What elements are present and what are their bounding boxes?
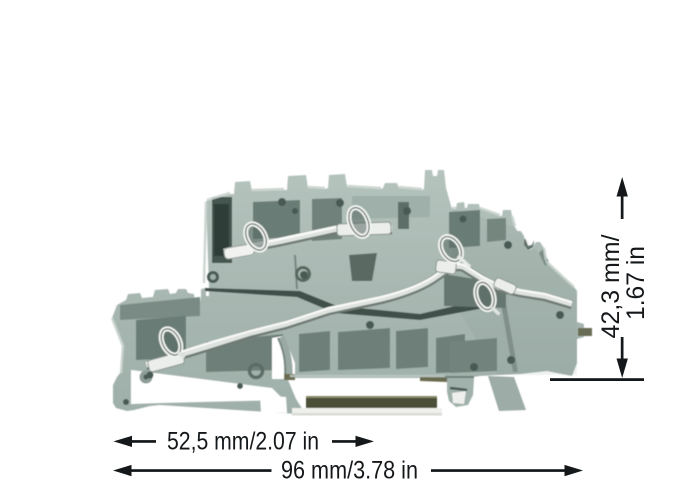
svg-text:96 mm/3.78 in: 96 mm/3.78 in [281, 457, 418, 485]
svg-text:52,5 mm/2.07 in: 52,5 mm/2.07 in [167, 428, 319, 456]
svg-text:42,3 mm/ 1.67 in: 42,3 mm/ 1.67 in [597, 228, 650, 339]
